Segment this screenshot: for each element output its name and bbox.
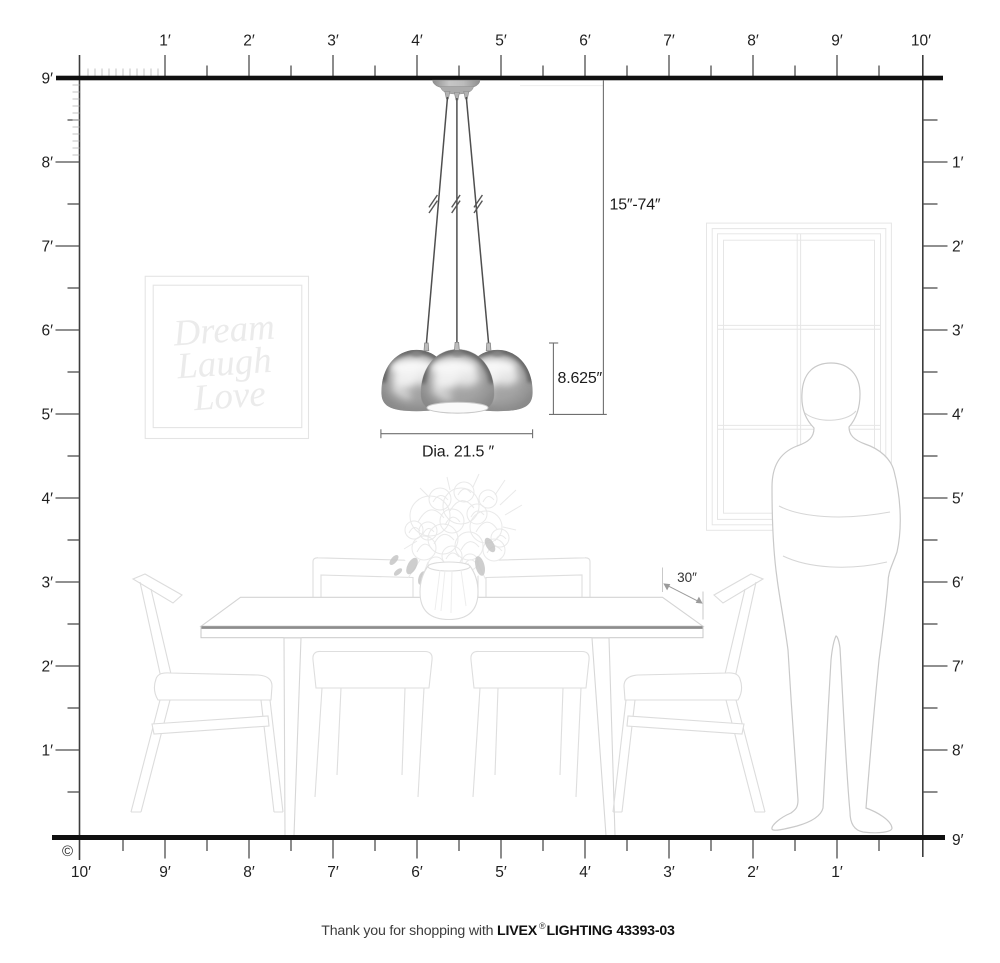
svg-text:1′: 1′ [831, 864, 843, 881]
svg-text:8.625″: 8.625″ [558, 370, 603, 387]
svg-text:2′: 2′ [243, 33, 255, 50]
svg-text:1′: 1′ [159, 33, 171, 50]
svg-text:6′: 6′ [952, 575, 964, 592]
svg-text:2′: 2′ [952, 239, 964, 256]
svg-text:5′: 5′ [41, 407, 53, 424]
svg-text:7′: 7′ [663, 33, 675, 50]
svg-text:9′: 9′ [159, 864, 171, 881]
svg-text:4′: 4′ [411, 33, 423, 50]
svg-text:7′: 7′ [952, 659, 964, 676]
svg-text:1′: 1′ [952, 155, 964, 172]
svg-text:15″-74″: 15″-74″ [610, 197, 661, 214]
svg-text:7′: 7′ [41, 239, 53, 256]
svg-text:2′: 2′ [747, 864, 759, 881]
svg-text:5′: 5′ [495, 33, 507, 50]
svg-text:10′: 10′ [911, 33, 931, 50]
svg-text:Dia. 21.5 ″: Dia. 21.5 ″ [422, 444, 494, 461]
svg-text:8′: 8′ [41, 155, 53, 172]
svg-text:9′: 9′ [831, 33, 843, 50]
svg-text:10′: 10′ [71, 864, 91, 881]
svg-text:8′: 8′ [747, 33, 759, 50]
svg-text:Thank you for shopping with LI: Thank you for shopping with LIVEX®LIGHTI… [321, 921, 675, 939]
svg-text:8′: 8′ [952, 743, 964, 760]
svg-text:7′: 7′ [327, 864, 339, 881]
svg-text:6′: 6′ [41, 323, 53, 340]
svg-text:Love: Love [191, 373, 267, 419]
svg-text:5′: 5′ [952, 491, 964, 508]
svg-text:3′: 3′ [663, 864, 675, 881]
svg-text:4′: 4′ [952, 407, 964, 424]
svg-text:3′: 3′ [327, 33, 339, 50]
svg-text:6′: 6′ [579, 33, 591, 50]
svg-text:9′: 9′ [41, 71, 53, 88]
svg-text:3′: 3′ [41, 575, 53, 592]
svg-text:1′: 1′ [41, 743, 53, 760]
svg-text:6′: 6′ [411, 864, 423, 881]
svg-text:30″: 30″ [677, 570, 697, 585]
svg-text:4′: 4′ [579, 864, 591, 881]
svg-text:8′: 8′ [243, 864, 255, 881]
svg-text:2′: 2′ [41, 659, 53, 676]
svg-text:5′: 5′ [495, 864, 507, 881]
svg-text:©: © [62, 843, 73, 860]
svg-text:3′: 3′ [952, 323, 964, 340]
svg-text:9′: 9′ [952, 832, 964, 849]
svg-text:4′: 4′ [41, 491, 53, 508]
